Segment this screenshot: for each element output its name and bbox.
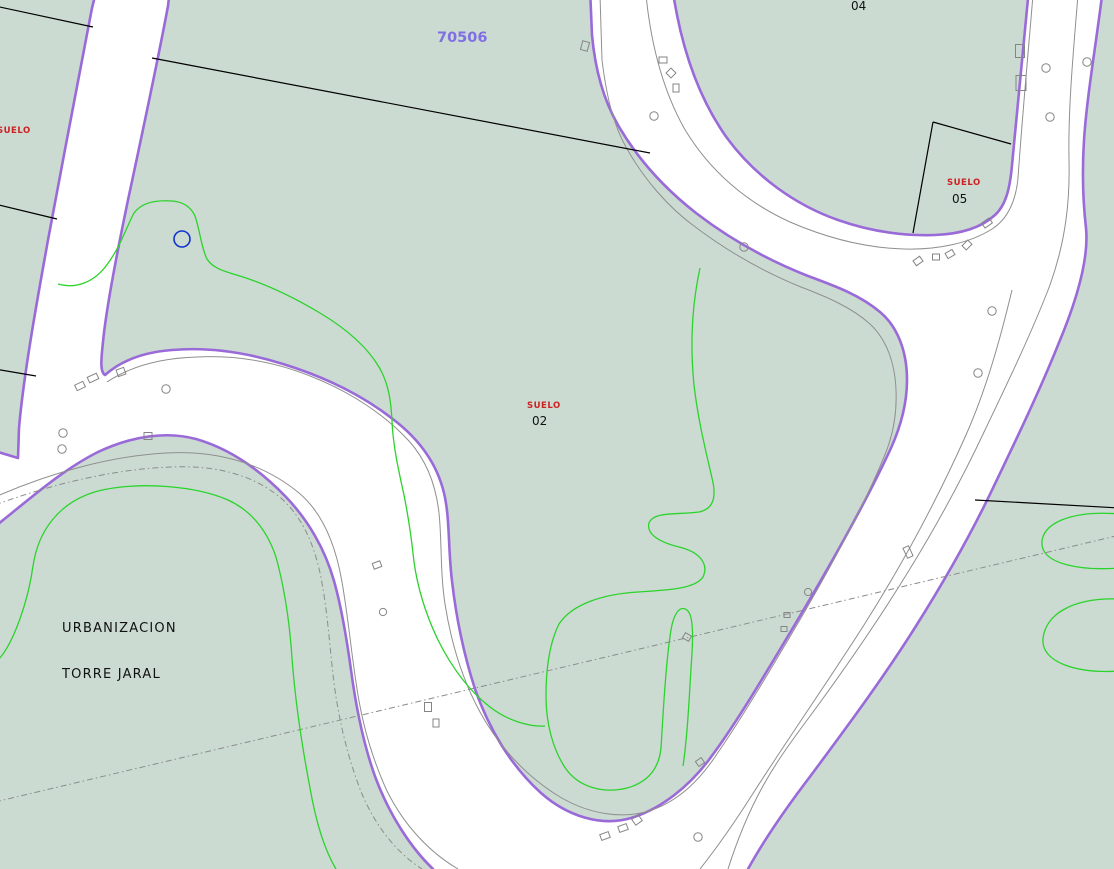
urbanization-label-line1: URBANIZACION: [62, 621, 177, 636]
urbanization-label-line2: TORRE JARAL: [61, 667, 161, 682]
suelo-02-number: 02: [532, 414, 547, 428]
map-svg: 70506 SUELO SUELO 02 SUELO 05 04 URBANIZ…: [0, 0, 1114, 869]
suelo-05-number: 05: [952, 192, 967, 206]
parcel-number-label: 70506: [437, 30, 487, 46]
parcel-04-number: 04: [851, 0, 866, 13]
suelo-05-title: SUELO: [947, 178, 981, 188]
suelo-left-label: SUELO: [0, 126, 31, 136]
cadastral-map-canvas[interactable]: 70506 SUELO SUELO 02 SUELO 05 04 URBANIZ…: [0, 0, 1114, 869]
suelo-02-title: SUELO: [527, 401, 561, 411]
